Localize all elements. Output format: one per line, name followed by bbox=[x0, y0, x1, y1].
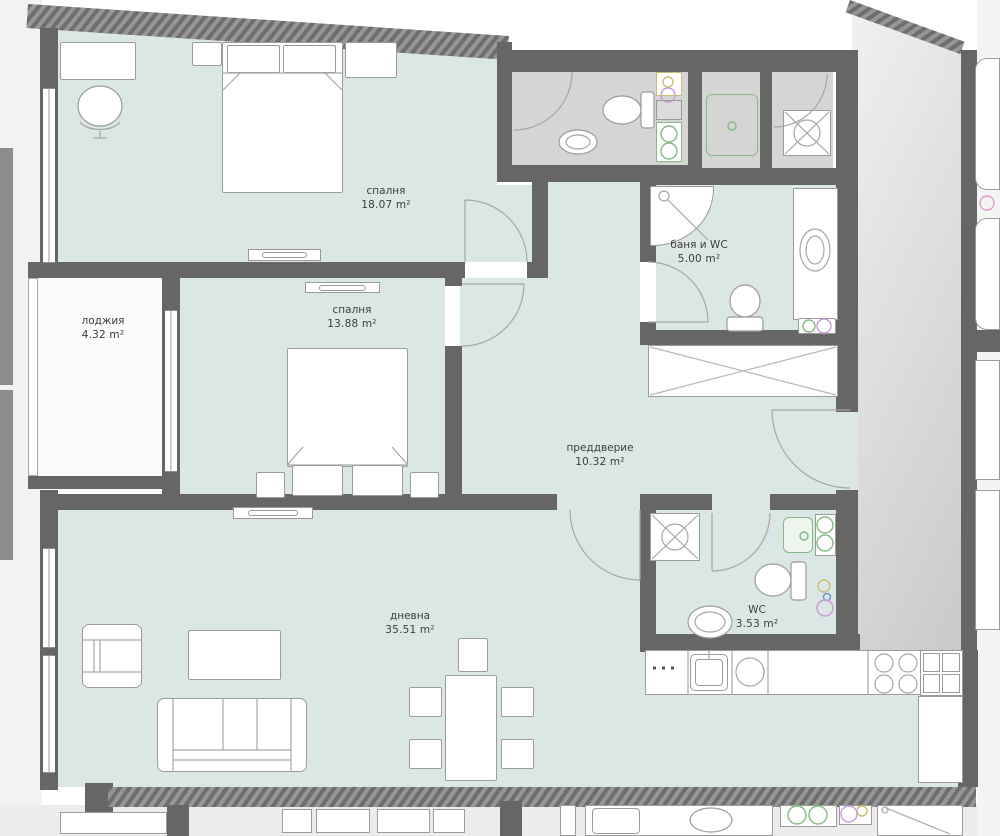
toilet-icon bbox=[603, 96, 641, 124]
fixture-dot bbox=[663, 77, 673, 87]
room-label-hallway: преддверие 10.32 m² bbox=[566, 441, 633, 469]
room-name: спалня bbox=[361, 184, 410, 198]
washer-drum bbox=[817, 319, 831, 333]
room-label-bedroom-2: спалня 13.88 m² bbox=[327, 303, 376, 331]
sofa-lines bbox=[173, 698, 291, 772]
door-swing-neighbor-a bbox=[514, 72, 572, 130]
neighbor-shower-head bbox=[882, 807, 888, 813]
washer-drum bbox=[661, 126, 677, 142]
toilet-icon bbox=[730, 285, 760, 317]
washer-drum bbox=[803, 320, 815, 332]
door-swing-wc bbox=[712, 513, 770, 571]
office-chair bbox=[78, 86, 122, 126]
room-area: 18.07 m² bbox=[361, 198, 410, 212]
washer-drum bbox=[817, 535, 833, 551]
room-area: 35.51 m² bbox=[385, 623, 434, 637]
counter-divider bbox=[688, 650, 868, 695]
neighbor-sink-oval bbox=[690, 808, 732, 832]
room-name: лоджия bbox=[82, 314, 125, 328]
bed-fold bbox=[287, 447, 408, 465]
cooktop-burner bbox=[899, 675, 917, 693]
floor-plan: спалня 18.07 m² спалня 13.88 m² лоджия 4… bbox=[0, 0, 1000, 836]
door-swing-bedroom-1 bbox=[465, 200, 527, 262]
cooktop-burner bbox=[875, 675, 893, 693]
shower-drain-line bbox=[668, 200, 708, 240]
armchair-lines bbox=[82, 640, 142, 672]
bed-fold bbox=[222, 73, 343, 91]
shower-head bbox=[659, 191, 669, 201]
door-swing-bedroom-2 bbox=[462, 284, 524, 346]
door-swing-living bbox=[570, 510, 640, 580]
door-swing-neighbor-c bbox=[774, 74, 827, 127]
fixture-dot bbox=[661, 88, 675, 102]
sink-icon bbox=[800, 229, 830, 271]
washer-drum bbox=[809, 806, 827, 824]
cooktop-burner bbox=[899, 654, 917, 672]
room-label-wc: WC 3.53 m² bbox=[736, 603, 779, 631]
fixture-dot bbox=[980, 196, 994, 210]
plan-linework bbox=[0, 0, 1000, 836]
room-label-living: дневна 35.51 m² bbox=[385, 609, 434, 637]
room-area: 10.32 m² bbox=[566, 455, 633, 469]
room-name: баня и WC bbox=[670, 238, 727, 252]
room-area: 5.00 m² bbox=[670, 252, 727, 266]
washer-drum bbox=[817, 517, 833, 533]
room-name: спалня bbox=[327, 303, 376, 317]
wardrobe-cross bbox=[650, 347, 836, 395]
toilet-tank bbox=[641, 92, 654, 128]
sink-basin bbox=[806, 236, 824, 264]
room-label-bedroom-1: спалня 18.07 m² bbox=[361, 184, 410, 212]
room-name: дневна bbox=[385, 609, 434, 623]
washbasin-dot bbox=[800, 532, 808, 540]
room-area: 13.88 m² bbox=[327, 317, 376, 331]
door-swing-bathroom bbox=[648, 262, 708, 322]
room-area: 3.53 m² bbox=[736, 617, 779, 631]
shaft-cross bbox=[785, 112, 829, 154]
fixture-dot bbox=[857, 806, 867, 816]
room-area: 4.32 m² bbox=[82, 328, 125, 342]
fixture-dot bbox=[817, 600, 833, 616]
room-name: WC bbox=[736, 603, 779, 617]
toilet-icon bbox=[755, 564, 791, 596]
shaft-cross bbox=[652, 515, 698, 559]
washer-drum bbox=[788, 806, 806, 824]
room-label-bathroom: баня и WC 5.00 m² bbox=[670, 238, 727, 266]
cooktop-burner bbox=[875, 654, 893, 672]
fixture-dot bbox=[818, 580, 830, 592]
washer-drum bbox=[841, 806, 857, 822]
shower-dot bbox=[728, 122, 736, 130]
sink-icon bbox=[559, 130, 597, 154]
toilet-tank bbox=[727, 317, 763, 331]
counter-circle bbox=[736, 658, 764, 686]
washer-drum bbox=[661, 143, 677, 159]
toilet-tank bbox=[791, 562, 806, 600]
door-swing-entrance bbox=[772, 410, 850, 488]
room-label-loggia: лоджия 4.32 m² bbox=[82, 314, 125, 342]
neighbor-shower-line bbox=[886, 808, 950, 834]
room-name: преддверие bbox=[566, 441, 633, 455]
